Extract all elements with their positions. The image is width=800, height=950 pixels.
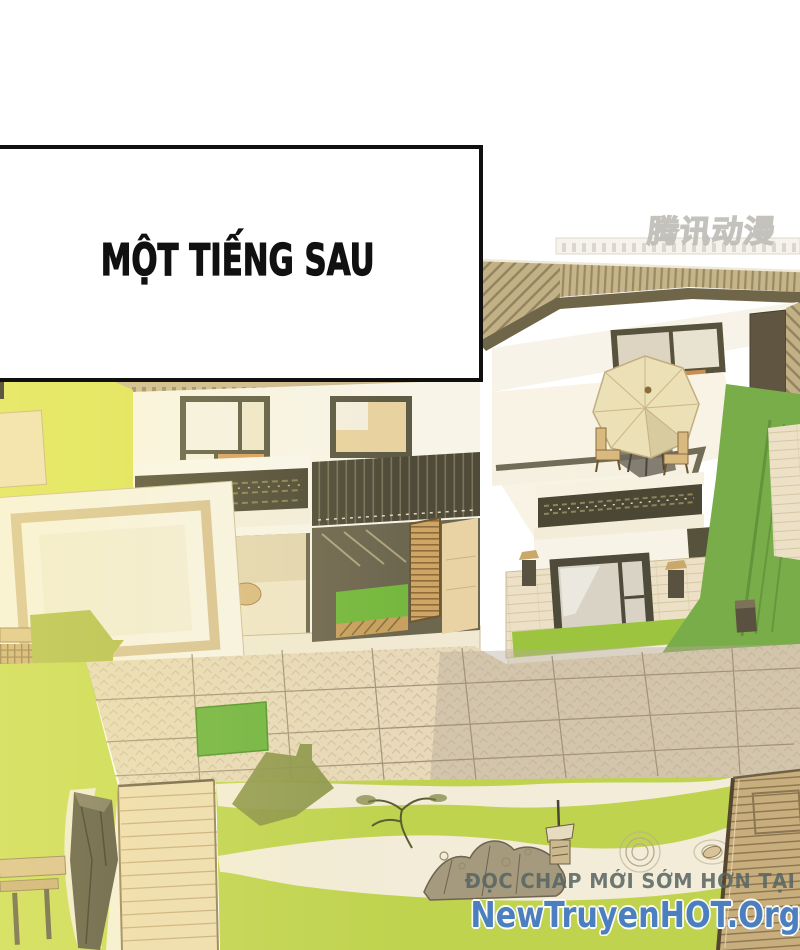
- slatted-door: [410, 518, 440, 622]
- wall-lantern-left: [519, 550, 539, 586]
- pavement-shade: [430, 644, 800, 782]
- garden-box: [735, 599, 757, 632]
- green-paving-inset: [196, 702, 268, 756]
- site-watermark-line1: ĐỌC CHAP MỚI SỚM HƠN TẠI: [446, 869, 800, 893]
- wall-lantern-right: [665, 560, 687, 598]
- site-watermark: ĐỌC CHAP MỚI SỚM HƠN TẠI NewTruyenHOT.Or…: [440, 869, 800, 936]
- house-illustration: [0, 0, 800, 950]
- caption-box: MỘT TIẾNG SAU: [0, 145, 483, 382]
- garden-table: [0, 410, 46, 487]
- upper-window-middle: [330, 396, 412, 458]
- courtyard: [86, 644, 800, 786]
- parasol-knob: [645, 387, 652, 394]
- comic-page: MỘT TIẾNG SAU 腾讯动漫 ĐỌC CHAP MỚI SỚM HƠN …: [0, 0, 800, 950]
- publisher-watermark: 腾讯动漫: [646, 206, 800, 251]
- garden-path: [106, 780, 218, 950]
- slat-screen: [312, 452, 480, 526]
- caption-text: MỘT TIẾNG SAU: [101, 235, 375, 286]
- middle-section: [312, 452, 480, 642]
- site-watermark-line2: NewTruyenHOT.Org: [470, 895, 789, 936]
- doorway-floor: [442, 518, 478, 634]
